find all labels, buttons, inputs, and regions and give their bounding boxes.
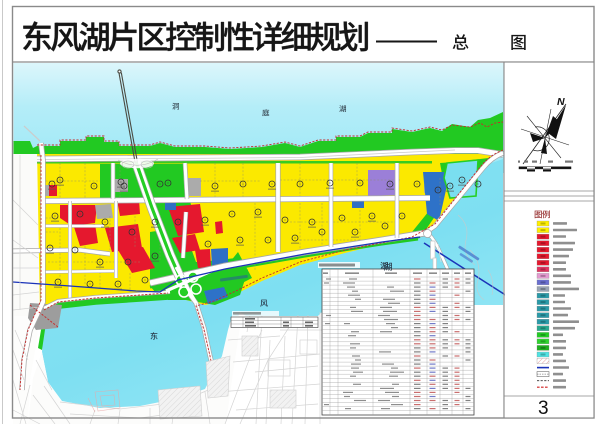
svg-text:N: N xyxy=(557,96,565,108)
svg-text:3: 3 xyxy=(538,398,549,419)
